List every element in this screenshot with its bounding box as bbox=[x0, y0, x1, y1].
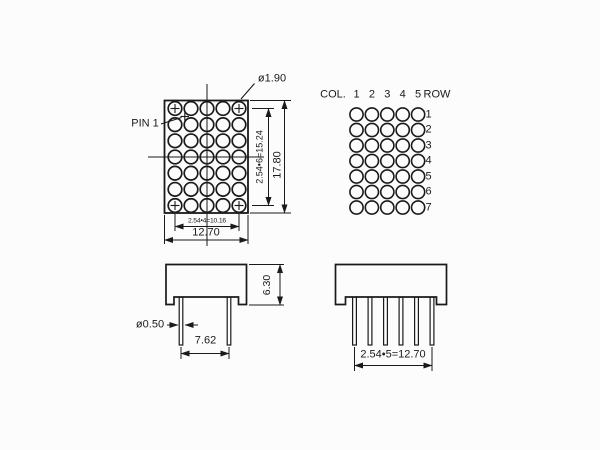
front-dot bbox=[216, 166, 230, 180]
matrix-dot bbox=[350, 139, 363, 152]
matrix-dot bbox=[381, 154, 394, 167]
matrix-dot bbox=[412, 154, 425, 167]
row-pitch-dim-label: 2.54•6=15.24 bbox=[255, 130, 264, 183]
row-number-label: 7 bbox=[425, 202, 431, 213]
package-pin bbox=[430, 297, 434, 345]
col-header-label: COL. bbox=[320, 90, 346, 101]
matrix-dot bbox=[381, 123, 394, 136]
pin-pitch-dim-label: 2.54•5=12.70 bbox=[360, 350, 425, 361]
matrix-dot bbox=[350, 108, 363, 121]
matrix-dot bbox=[365, 139, 378, 152]
row-number-label: 6 bbox=[425, 187, 431, 198]
matrix-dot bbox=[396, 108, 409, 121]
matrix-dot bbox=[412, 139, 425, 152]
pin1-label: PIN 1 bbox=[131, 119, 159, 130]
dot-diameter-leader-line bbox=[241, 84, 255, 100]
matrix-dot bbox=[365, 201, 378, 214]
package-pin bbox=[415, 297, 419, 345]
matrix-dot bbox=[381, 108, 394, 121]
col-pitch-dim-label: 2.54•4=10.16 bbox=[188, 218, 226, 225]
pin-diameter-dim-label: ø0.50 bbox=[136, 320, 164, 331]
col-number-label: 3 bbox=[384, 90, 390, 101]
col-number-label: 1 bbox=[353, 90, 359, 101]
front-dot bbox=[168, 134, 182, 148]
matrix-dot bbox=[412, 185, 425, 198]
row-number-label: 5 bbox=[425, 171, 431, 182]
front-dot bbox=[184, 134, 198, 148]
matrix-dot bbox=[381, 185, 394, 198]
matrix-dot bbox=[381, 170, 394, 183]
datasheet-drawing: PIN 1 ø1.90 2.54•6=15.24 17.80 2.54•4=10… bbox=[0, 0, 600, 450]
front-dot bbox=[216, 118, 230, 132]
front-dot bbox=[216, 102, 230, 116]
front-dot bbox=[184, 166, 198, 180]
front-dot bbox=[232, 118, 246, 132]
matrix-dot bbox=[396, 201, 409, 214]
front-dot bbox=[168, 166, 182, 180]
package-pin bbox=[384, 297, 388, 345]
matrix-dot bbox=[396, 123, 409, 136]
matrix-dot bbox=[381, 139, 394, 152]
drawing-canvas bbox=[0, 0, 600, 450]
front-dot bbox=[232, 134, 246, 148]
front-dot bbox=[184, 199, 198, 213]
front-dot bbox=[184, 102, 198, 116]
matrix-dot bbox=[412, 170, 425, 183]
package-pin bbox=[399, 297, 403, 345]
dot-diameter-label: ø1.90 bbox=[258, 74, 286, 85]
front-dot bbox=[184, 183, 198, 197]
col-number-label: 4 bbox=[400, 90, 406, 101]
matrix-dot bbox=[365, 185, 378, 198]
matrix-dot bbox=[396, 170, 409, 183]
width-dim-label: 12.70 bbox=[192, 228, 220, 239]
matrix-dot bbox=[396, 139, 409, 152]
matrix-dot bbox=[350, 154, 363, 167]
matrix-dot bbox=[350, 185, 363, 198]
row-number-label: 4 bbox=[425, 156, 431, 167]
matrix-dot bbox=[365, 170, 378, 183]
matrix-dot bbox=[381, 201, 394, 214]
front-dot bbox=[184, 118, 198, 132]
pin-spacing-dimension bbox=[181, 347, 229, 359]
front-dot bbox=[216, 134, 230, 148]
front-dot bbox=[168, 183, 182, 197]
front-dot bbox=[216, 199, 230, 213]
matrix-dot bbox=[412, 123, 425, 136]
matrix-dot bbox=[350, 201, 363, 214]
row-number-label: 3 bbox=[425, 140, 431, 151]
row-number-label: 1 bbox=[425, 109, 431, 120]
row-header-label: ROW bbox=[424, 90, 451, 101]
matrix-dot bbox=[365, 108, 378, 121]
body-height-dim-label: 6.30 bbox=[261, 275, 272, 295]
side-side-pins bbox=[353, 297, 434, 345]
col-number-label: 5 bbox=[415, 90, 421, 101]
matrix-dot bbox=[350, 123, 363, 136]
side-front-body-outline bbox=[166, 265, 247, 305]
matrix-dot bbox=[365, 154, 378, 167]
row-number-label: 2 bbox=[425, 125, 431, 136]
matrix-dot bbox=[365, 123, 378, 136]
matrix-dot bbox=[412, 201, 425, 214]
pin-grid-view bbox=[350, 108, 425, 214]
matrix-dot bbox=[396, 154, 409, 167]
pin-spacing-dim-label: 7.62 bbox=[195, 336, 216, 347]
height-dim-label: 17.80 bbox=[272, 151, 283, 179]
front-dot bbox=[216, 183, 230, 197]
front-dot bbox=[232, 166, 246, 180]
package-pin bbox=[368, 297, 372, 345]
package-pin bbox=[353, 297, 357, 345]
matrix-dot bbox=[412, 108, 425, 121]
col-number-label: 2 bbox=[369, 90, 375, 101]
front-dot bbox=[232, 183, 246, 197]
matrix-dot bbox=[350, 170, 363, 183]
matrix-dot bbox=[396, 185, 409, 198]
